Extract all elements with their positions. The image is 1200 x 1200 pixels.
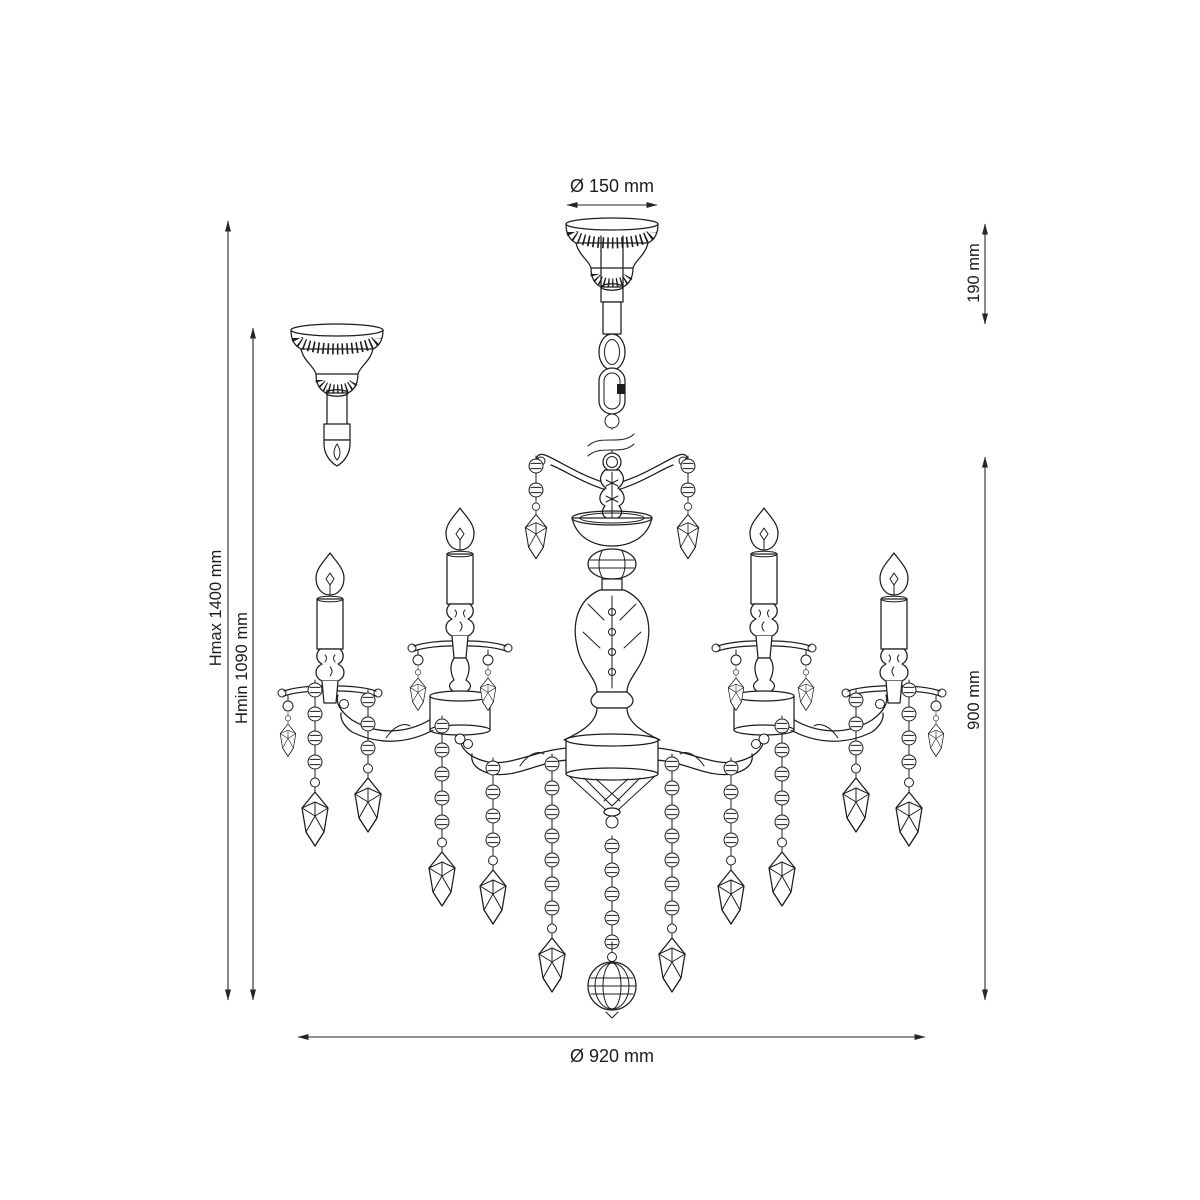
dim-top-diameter: Ø 150 mm — [567, 176, 657, 205]
canopy-detail-drawing — [291, 324, 383, 466]
ceiling-canopy — [566, 218, 658, 290]
dim-label-hang-height: 190 mm — [965, 243, 983, 303]
central-column — [564, 453, 660, 1018]
dim-label-body-height: 900 mm — [965, 670, 983, 730]
dim-label-hmax: Hmax 1400 mm — [207, 550, 225, 666]
dim-label-bottom-diameter: Ø 920 mm — [570, 1046, 654, 1066]
dim-label-hmin: Hmin 1090 mm — [233, 612, 251, 724]
dim-body-height: 900 mm — [965, 457, 985, 1000]
drawing-canvas: Ø 150 mm 190 mm 900 mm Hmax 1400 mm Hmin… — [0, 0, 1200, 1200]
arms-left — [278, 454, 611, 992]
dim-hmin: Hmin 1090 mm — [233, 328, 253, 1000]
dim-hang-height: 190 mm — [965, 224, 985, 324]
arms-right — [613, 454, 946, 992]
suspension-assembly — [566, 218, 658, 456]
chandelier-dimension-diagram: Ø 150 mm 190 mm 900 mm Hmax 1400 mm Hmin… — [0, 0, 1200, 1200]
dim-hmax: Hmax 1400 mm — [207, 221, 228, 1000]
chandelier-body — [278, 453, 946, 1018]
dim-label-top-diameter: Ø 150 mm — [570, 176, 654, 196]
dim-bottom-diameter: Ø 920 mm — [298, 1037, 925, 1066]
